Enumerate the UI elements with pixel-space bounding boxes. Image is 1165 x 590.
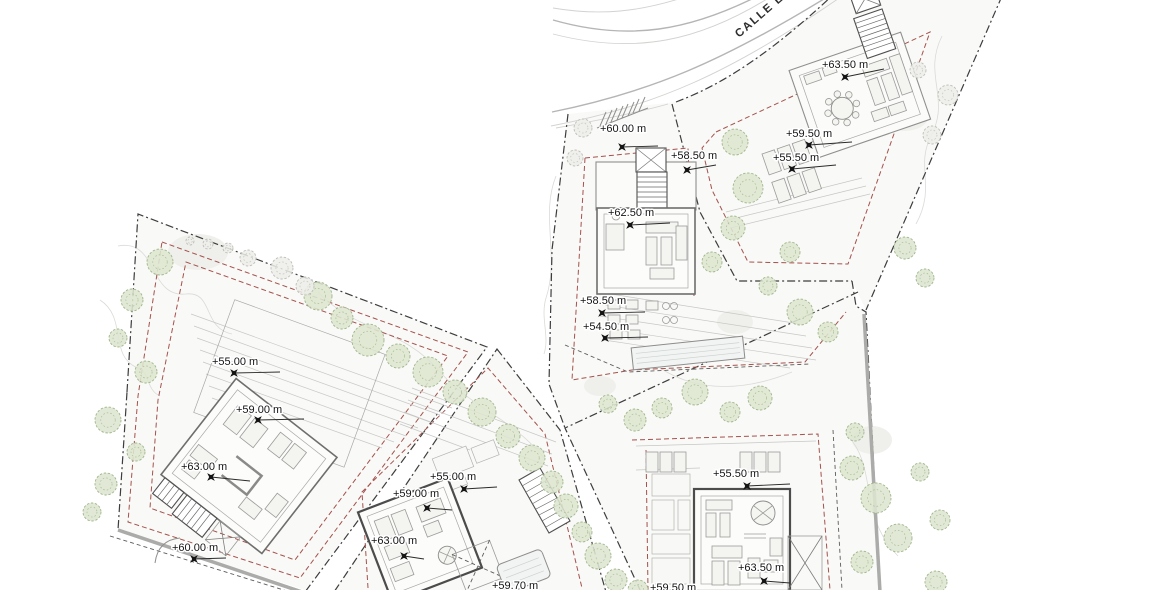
elevation-text: +55.50 m [773,152,819,164]
elevation-text: +59.50 m [650,582,696,590]
shrub-icon [186,237,194,245]
elevation-text: +55.00 m [212,356,258,368]
tree-icon [585,543,611,569]
tree-icon [599,395,617,413]
tree-icon [759,277,777,295]
shrub-icon [938,85,958,105]
tree-icon [496,424,520,448]
tree-icon [443,380,467,404]
shrub-icon [203,239,213,249]
tree-icon [386,344,410,368]
shrub-icon [296,277,314,295]
tree-icon [109,329,127,347]
tree-icon [554,494,578,518]
side-rooms [652,474,690,584]
tree-icon [624,409,646,431]
tree-icon [930,510,950,530]
elevation-text: +59.00 m [236,404,282,416]
tree-icon [840,456,864,480]
elevation-text: +58.50 m [671,150,717,162]
elevation-text: +60.00 m [172,542,218,554]
shrub-icon [240,250,256,266]
shrub-icon [574,119,592,137]
elevation-text: +55.50 m [713,468,759,480]
tree-icon [733,173,763,203]
tree-icon [83,503,101,521]
elevation-text: +63.50 m [738,562,784,574]
elevation-text: +59.70 m [492,580,538,590]
tree-icon [572,522,592,542]
tree-icon [720,402,740,422]
tree-icon [748,386,772,410]
site-plan-canvas: CALLE LL [0,0,1165,590]
tree-icon [121,289,143,311]
elevation-text: +63.00 m [181,461,227,473]
site-plan-page: CALLE LL [0,0,1165,590]
tree-icon [682,379,708,405]
elevation-text: +59.50 m [786,128,832,140]
elevation-text: +55.00 m [430,471,476,483]
tree-icon [95,473,117,495]
tree-icon [135,361,157,383]
tree-icon [894,237,916,259]
tree-icon [147,249,173,275]
elevation-text: +63.00 m [371,535,417,547]
elevation-text: +58.50 m [580,295,626,307]
elevation-text: +62.50 m [608,207,654,219]
tree-icon [352,324,384,356]
tree-icon [702,252,722,272]
tree-icon [818,322,838,342]
elevation-text: +63.50 m [822,59,868,71]
shrub-icon [567,150,583,166]
tree-icon [851,551,873,573]
tree-icon [925,571,947,590]
tree-icon [541,471,563,493]
tree-icon [916,269,934,287]
tree-icon [413,357,443,387]
skylight-x-icon [636,148,666,172]
shrub-icon [271,257,293,279]
tree-icon [787,299,813,325]
stair-icon [637,172,667,210]
tree-icon [780,242,800,262]
elevation-label: +59.50 m [650,582,696,590]
tree-icon [519,445,545,471]
elevation-text: +60.00 m [600,123,646,135]
tree-icon [605,569,627,590]
tree-icon [722,129,748,155]
tree-icon [468,398,496,426]
elevation-label: +59.70 m [492,580,538,590]
tree-icon [911,463,929,481]
tree-icon [652,398,672,418]
shrub-icon [910,62,926,78]
tree-icon [846,423,864,441]
elevation-text: +59.00 m [393,488,439,500]
tree-icon [721,216,745,240]
tree-icon [127,443,145,461]
shrub-icon [923,126,941,144]
tree-icon [861,483,891,513]
shrub-icon [223,243,233,253]
tree-icon [95,407,121,433]
tree-icon [884,524,912,552]
tree-icon [331,307,353,329]
elevation-text: +54.50 m [583,321,629,333]
